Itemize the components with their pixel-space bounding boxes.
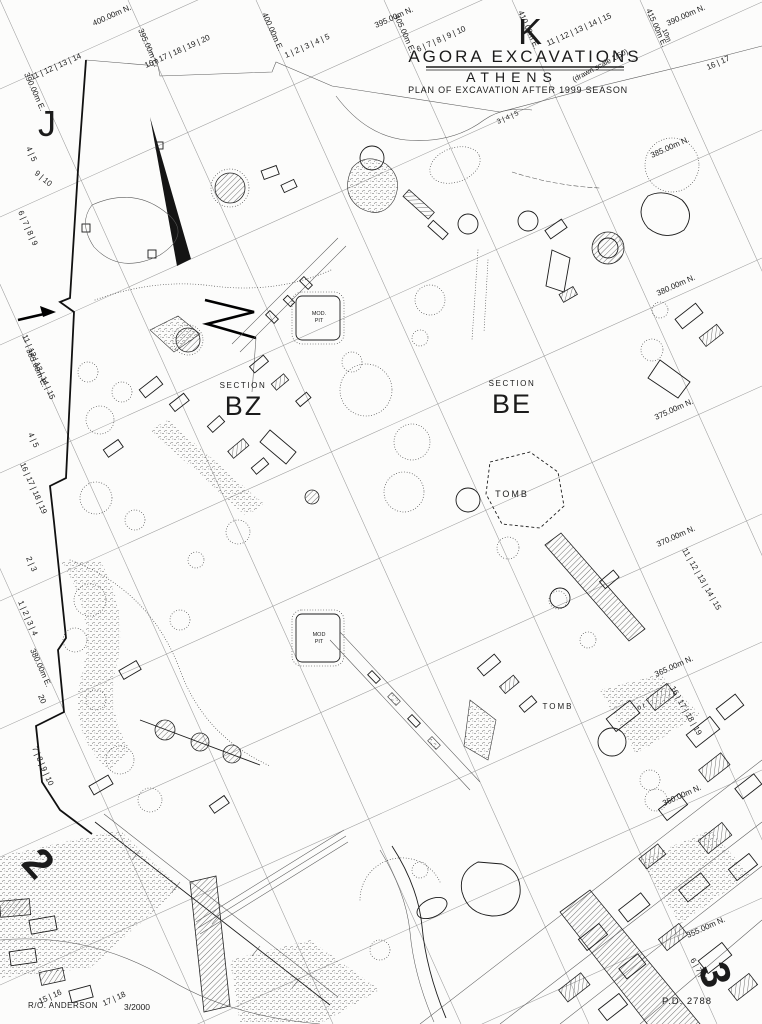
section-label: SECTION [220, 381, 267, 390]
grid-tick-numbers: 4 | 5 [26, 431, 41, 449]
title-block: AGORA EXCAVATIONS ATHENS PLAN OF EXCAVAT… [408, 47, 642, 95]
plan-features-mid-right [545, 533, 645, 648]
grid-label-north: 385.00m N. [649, 135, 690, 160]
credit-date: 3/2000 [124, 1002, 150, 1012]
mod-pit-outline [296, 614, 340, 662]
grid-label-east: 380.00m E. [28, 647, 53, 688]
grid-tick-numbers: 16 | 17 | 18 | 19 [18, 461, 49, 516]
grid-label-east: 400.00m E. [260, 11, 285, 52]
excavation-plan-sheet: AGORA EXCAVATIONS ATHENS PLAN OF EXCAVAT… [0, 0, 762, 1024]
grid-tick-numbers: 11 | 12 | 13 | 14 | 15 [545, 11, 613, 48]
grid-tick-numbers: 1 | 2 | 3 | 4 [16, 599, 40, 637]
grid-square-letter: K [518, 11, 542, 52]
grid-label-north: 380.00m N. [655, 273, 696, 298]
plan-features-bz [78, 292, 430, 666]
grid-square-letter: J [38, 103, 56, 144]
grid-label-east: 405.00m E. [392, 13, 417, 54]
grid-label-north: 370.00m N. [655, 524, 696, 549]
grid-tick-numbers: 11 | 12 | 13 | 14 | 15 [20, 333, 57, 401]
grid-label-north: 355.00m N. [685, 915, 726, 940]
tomb-label: TOMB [495, 489, 529, 499]
grid-tick-numbers: 7 | 8 | 9 | 10 [30, 745, 55, 787]
tomb-label: TOMB [543, 702, 574, 711]
grid-label-north: 400.00m N. [91, 3, 132, 28]
grid-tick-numbers: 20 [36, 693, 48, 705]
tomb-2-area [330, 632, 667, 811]
grid-tick-numbers: 11 | 12 | 13 | 14 | 15 [680, 547, 723, 613]
plan-subtitle: ATHENS [466, 69, 558, 85]
plan-features-sw [60, 560, 270, 813]
plan-number: P.D. 2788 [662, 996, 712, 1007]
mod-pit-label: MOD [313, 632, 326, 638]
grid-tick-numbers: 6 | 7 | 8 | 9 [16, 209, 40, 247]
plan-caption: PLAN OF EXCAVATION AFTER 1999 SEASON [408, 85, 628, 95]
grid-label-north: 360.00m N. [661, 783, 702, 808]
plan-features-be [232, 138, 723, 398]
north-arrow-icon [150, 117, 256, 392]
grid-tick-numbers: 1 | 2 | 3 | 4 | 5 [283, 32, 331, 60]
section-name: BE [492, 389, 532, 419]
mod-pit-label: PIT [315, 639, 324, 645]
grid-tick-numbers: 4 | 5 [24, 145, 39, 163]
mod-pit-label: PIT [315, 318, 324, 324]
grid-label-north: 390.00m N. [665, 3, 706, 28]
plan-features-nw [82, 96, 532, 300]
section-name: BZ [225, 391, 264, 421]
grid-label-north: 375.00m N. [653, 397, 694, 422]
grid-tick-numbers: 9 | 10 [33, 169, 54, 189]
grid-tick-numbers: 2 | 3 [24, 555, 39, 573]
grid-tick-numbers: 11 | 12 | 13 | 14 [29, 51, 83, 82]
mod-pit-label: MOD. [312, 311, 327, 317]
credits-block: R/O. ANDERSON 3/2000 P.D. 2788 [28, 996, 712, 1012]
section-label: SECTION [489, 379, 536, 388]
grid-tick-numbers: 16 | 17 [705, 53, 731, 71]
plan-svg: AGORA EXCAVATIONS ATHENS PLAN OF EXCAVAT… [0, 0, 762, 1024]
